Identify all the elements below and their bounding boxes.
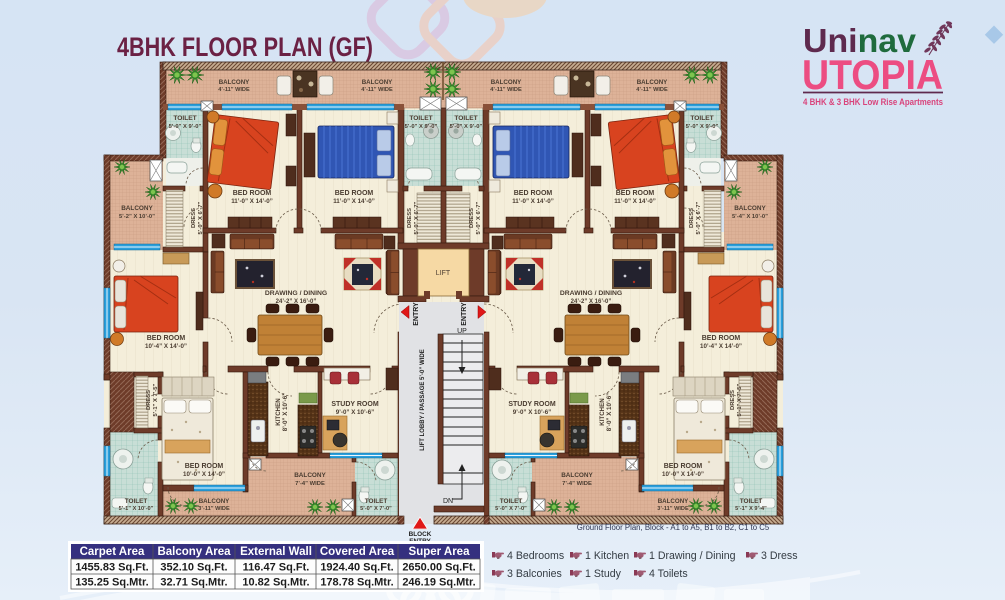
- svg-text:5’-1” X 10’-0”: 5’-1” X 10’-0”: [119, 506, 154, 512]
- svg-text:BALCONY: BALCONY: [734, 205, 766, 212]
- svg-text:ENTRY: ENTRY: [413, 302, 420, 326]
- svg-text:4’-11” WIDE: 4’-11” WIDE: [218, 87, 250, 93]
- svg-text:External Wall: External Wall: [240, 546, 312, 558]
- svg-text:TOILET: TOILET: [409, 115, 432, 122]
- svg-text:DRAWING / DINING: DRAWING / DINING: [560, 290, 622, 297]
- svg-text:116.47 Sq.Ft.: 116.47 Sq.Ft.: [243, 562, 310, 574]
- svg-text:TOILET: TOILET: [500, 498, 523, 505]
- svg-text:BALCONY: BALCONY: [491, 79, 522, 86]
- svg-text:DRESS: DRESS: [407, 208, 413, 228]
- svg-text:KITCHEN: KITCHEN: [599, 398, 606, 426]
- svg-text:5’-0” X 6’-7”: 5’-0” X 6’-7”: [198, 201, 204, 234]
- svg-text:TOILET: TOILET: [454, 115, 477, 122]
- svg-text:BALCONY: BALCONY: [658, 498, 689, 505]
- svg-text:3’-11” WIDE: 3’-11” WIDE: [657, 506, 689, 512]
- svg-text:10’-4” X 14’-0”: 10’-4” X 14’-0”: [145, 343, 187, 350]
- svg-text:5’-0” X 7’-0”: 5’-0” X 7’-0”: [360, 506, 392, 512]
- svg-text:DRESS: DRESS: [146, 390, 152, 410]
- svg-text:STUDY ROOM: STUDY ROOM: [331, 401, 378, 408]
- svg-text:BED ROOM: BED ROOM: [185, 463, 224, 470]
- svg-text:11’-0” X 14’-0”: 11’-0” X 14’-0”: [512, 198, 554, 205]
- svg-text:352.10 Sq.Ft.: 352.10 Sq.Ft.: [160, 562, 227, 574]
- svg-text:5’-0” X 6’-7”: 5’-0” X 6’-7”: [476, 201, 482, 234]
- svg-text:STUDY ROOM: STUDY ROOM: [508, 401, 555, 408]
- svg-text:9’-0” X 10’-6”: 9’-0” X 10’-6”: [513, 409, 552, 416]
- svg-text:TOILET: TOILET: [125, 498, 148, 505]
- svg-text:4 BHK & 3 BHK Low Rise Apartme: 4 BHK & 3 BHK Low Rise Apartments: [803, 97, 943, 107]
- svg-text:LIFT: LIFT: [436, 270, 451, 277]
- svg-text:10’-0” X 14’-0”: 10’-0” X 14’-0”: [662, 471, 704, 478]
- svg-text:5’-0” X 9’-0”: 5’-0” X 9’-0”: [450, 124, 483, 130]
- svg-text:5’-0” X 6’-7”: 5’-0” X 6’-7”: [696, 201, 702, 234]
- svg-text:8’-0” X 10’-6”: 8’-0” X 10’-6”: [606, 393, 613, 432]
- svg-text:1 Kitchen: 1 Kitchen: [585, 550, 629, 562]
- svg-text:BED ROOM: BED ROOM: [616, 190, 655, 197]
- svg-text:7’-4” WIDE: 7’-4” WIDE: [295, 481, 325, 487]
- svg-text:BED ROOM: BED ROOM: [335, 190, 374, 197]
- svg-text:4 Bedrooms: 4 Bedrooms: [507, 550, 564, 562]
- svg-text:DRESS: DRESS: [191, 208, 197, 228]
- svg-text:1455.83 Sq.Ft.: 1455.83 Sq.Ft.: [75, 562, 148, 574]
- svg-text:BLOCK: BLOCK: [409, 531, 432, 538]
- svg-text:178.78 Sq.Mtr.: 178.78 Sq.Mtr.: [320, 577, 393, 589]
- svg-text:BALCONY: BALCONY: [561, 472, 593, 479]
- svg-text:1 Drawing / Dining: 1 Drawing / Dining: [649, 550, 736, 562]
- svg-text:BALCONY: BALCONY: [121, 205, 153, 212]
- svg-text:TOILET: TOILET: [690, 115, 713, 122]
- svg-text:7’-4” WIDE: 7’-4” WIDE: [562, 481, 592, 487]
- svg-text:BALCONY: BALCONY: [199, 498, 230, 505]
- svg-text:4’-11” WIDE: 4’-11” WIDE: [361, 87, 393, 93]
- svg-text:UP: UP: [457, 328, 467, 335]
- svg-text:5’-0” X 9’-0”: 5’-0” X 9’-0”: [405, 124, 438, 130]
- svg-text:Super Area: Super Area: [409, 546, 471, 558]
- svg-text:KITCHEN: KITCHEN: [275, 398, 282, 426]
- svg-text:10.82 Sq.Mtr.: 10.82 Sq.Mtr.: [242, 577, 309, 589]
- svg-text:246.19 Sq.Mtr.: 246.19 Sq.Mtr.: [402, 577, 475, 589]
- svg-text:TOILET: TOILET: [365, 498, 388, 505]
- svg-text:9’-0” X 10’-6”: 9’-0” X 10’-6”: [336, 409, 375, 416]
- svg-text:11’-0” X 14’-0”: 11’-0” X 14’-0”: [614, 198, 656, 205]
- svg-text:BED ROOM: BED ROOM: [664, 463, 703, 470]
- svg-text:DRESS: DRESS: [469, 208, 475, 228]
- svg-text:5’-0” X 6’-7”: 5’-0” X 6’-7”: [414, 201, 420, 234]
- svg-text:BED ROOM: BED ROOM: [702, 335, 741, 342]
- svg-text:5’-1” X 9’-4”: 5’-1” X 9’-4”: [735, 506, 767, 512]
- svg-text:BALCONY: BALCONY: [294, 472, 326, 479]
- svg-text:5’-0” X 9’-0”: 5’-0” X 9’-0”: [169, 124, 202, 130]
- svg-text:11’-0” X 14’-0”: 11’-0” X 14’-0”: [231, 198, 273, 205]
- svg-text:Balcony Area: Balcony Area: [157, 546, 231, 558]
- svg-text:5’-1” X 7’-5”: 5’-1” X 7’-5”: [153, 383, 159, 416]
- svg-text:5’-2” X 10’-0”: 5’-2” X 10’-0”: [119, 214, 155, 220]
- svg-text:10’-4” X 14’-0”: 10’-4” X 14’-0”: [700, 343, 742, 350]
- svg-text:5’-1” X 7’-5”: 5’-1” X 7’-5”: [737, 383, 743, 416]
- svg-text:ENTRY: ENTRY: [461, 302, 468, 326]
- svg-text:Ground Floor Plan, Block - A1: Ground Floor Plan, Block - A1 to A5, B1 …: [577, 523, 770, 532]
- svg-text:1924.40 Sq.Ft.: 1924.40 Sq.Ft.: [320, 562, 393, 574]
- svg-text:4BHK FLOOR PLAN (GF): 4BHK FLOOR PLAN (GF): [117, 32, 373, 62]
- svg-text:3 Dress: 3 Dress: [761, 550, 798, 562]
- svg-text:135.25 Sq.Mtr.: 135.25 Sq.Mtr.: [75, 577, 148, 589]
- svg-text:BED ROOM: BED ROOM: [233, 190, 272, 197]
- svg-text:BED ROOM: BED ROOM: [147, 335, 186, 342]
- svg-text:11’-0” X 14’-0”: 11’-0” X 14’-0”: [333, 198, 375, 205]
- svg-text:8’-0” X 10’-6”: 8’-0” X 10’-6”: [282, 393, 289, 432]
- svg-text:DRAWING / DINING: DRAWING / DINING: [265, 290, 327, 297]
- svg-text:24’-2” X 16’-0”: 24’-2” X 16’-0”: [276, 299, 317, 305]
- svg-text:24’-2” X 16’-0”: 24’-2” X 16’-0”: [571, 299, 612, 305]
- svg-text:DN: DN: [443, 498, 453, 505]
- svg-text:TOILET: TOILET: [740, 498, 763, 505]
- svg-text:3 Balconies: 3 Balconies: [507, 568, 562, 580]
- svg-text:Carpet Area: Carpet Area: [80, 546, 145, 558]
- svg-text:4’-11” WIDE: 4’-11” WIDE: [636, 87, 668, 93]
- svg-text:32.71 Sq.Mtr.: 32.71 Sq.Mtr.: [160, 577, 227, 589]
- svg-text:10’-0” X 14’-0”: 10’-0” X 14’-0”: [183, 471, 225, 478]
- svg-text:BALCONY: BALCONY: [637, 79, 668, 86]
- svg-text:BED ROOM: BED ROOM: [514, 190, 553, 197]
- svg-text:2650.00 Sq.Ft.: 2650.00 Sq.Ft.: [402, 562, 475, 574]
- svg-text:Covered Area: Covered Area: [320, 546, 395, 558]
- svg-text:LIFT LOBBY / PASSAGE 5’-0” WID: LIFT LOBBY / PASSAGE 5’-0” WIDE: [420, 349, 426, 450]
- svg-text:DRESS: DRESS: [689, 208, 695, 228]
- svg-text:3’-11” WIDE: 3’-11” WIDE: [198, 506, 230, 512]
- svg-text:5’-0” X 9’-0”: 5’-0” X 9’-0”: [686, 124, 719, 130]
- svg-text:5’-0” X 7’-0”: 5’-0” X 7’-0”: [495, 506, 527, 512]
- svg-text:TOILET: TOILET: [173, 115, 196, 122]
- svg-text:1 Study: 1 Study: [585, 568, 622, 580]
- svg-text:UTOPIA: UTOPIA: [802, 51, 943, 98]
- svg-text:BALCONY: BALCONY: [362, 79, 393, 86]
- svg-text:BALCONY: BALCONY: [219, 79, 250, 86]
- svg-text:4’-11” WIDE: 4’-11” WIDE: [490, 87, 522, 93]
- svg-text:5’-4” X 10’-0”: 5’-4” X 10’-0”: [732, 214, 768, 220]
- svg-text:DRESS: DRESS: [730, 390, 736, 410]
- svg-text:4 Toilets: 4 Toilets: [649, 568, 688, 580]
